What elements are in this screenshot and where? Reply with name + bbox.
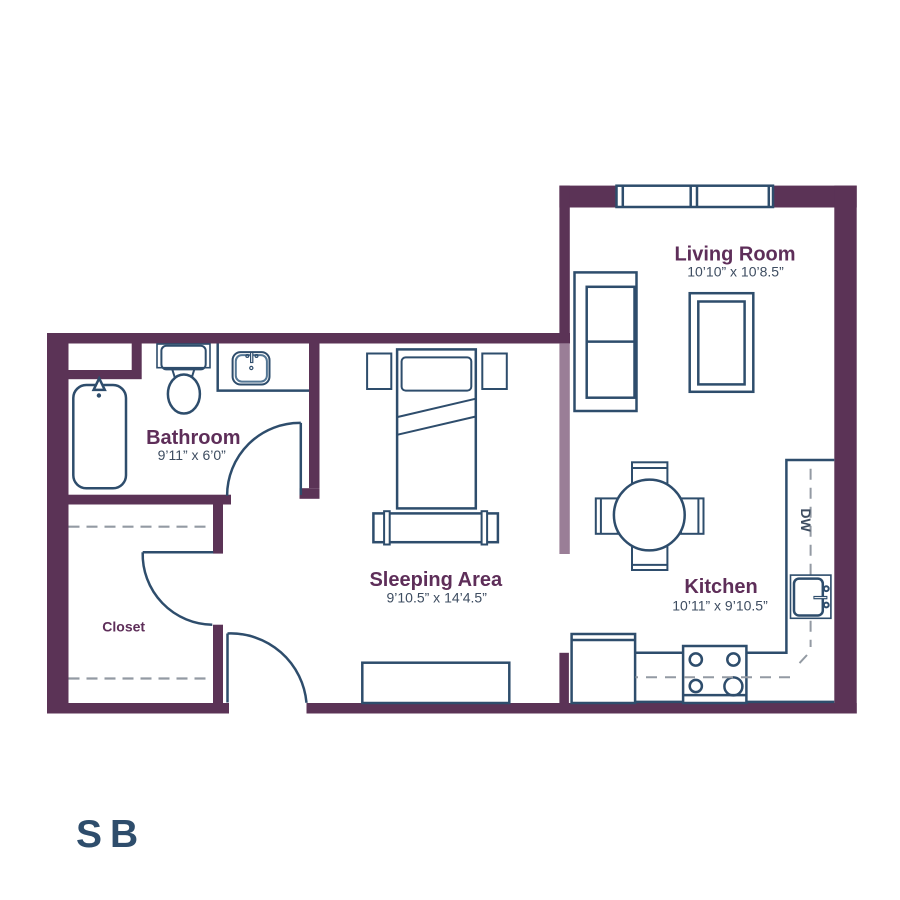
svg-text:9’10.5” x 14’4.5”: 9’10.5” x 14’4.5”	[386, 590, 487, 606]
svg-text:DW: DW	[798, 508, 814, 532]
svg-text:Sleeping Area: Sleeping Area	[369, 569, 503, 591]
svg-text:10’11” x 9’10.5”: 10’11” x 9’10.5”	[672, 598, 768, 614]
svg-text:Bathroom: Bathroom	[146, 427, 240, 449]
svg-text:Closet: Closet	[102, 619, 145, 635]
svg-text:Living Room: Living Room	[674, 243, 795, 265]
svg-text:10’10” x 10’8.5”: 10’10” x 10’8.5”	[687, 264, 784, 280]
svg-text:SB: SB	[76, 813, 146, 856]
svg-text:9’11” x 6’0”: 9’11” x 6’0”	[158, 447, 227, 463]
svg-text:Kitchen: Kitchen	[684, 576, 757, 598]
